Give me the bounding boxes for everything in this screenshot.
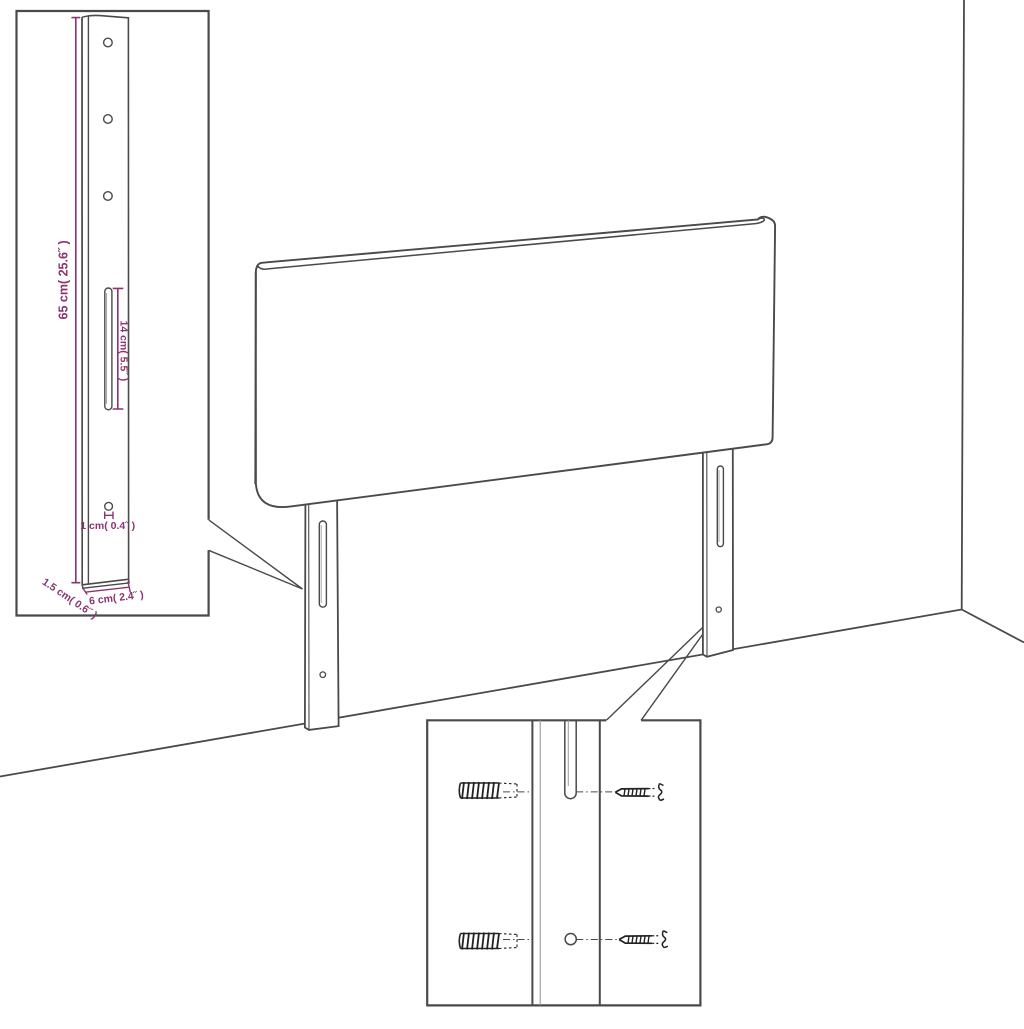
svg-text:65 cm( 25.6˝ ): 65 cm( 25.6˝ )	[57, 240, 71, 319]
svg-text:1 cm( 0.4˝ ): 1 cm( 0.4˝ )	[80, 520, 135, 532]
svg-text:14 cm( 5.5˝ ): 14 cm( 5.5˝ )	[118, 321, 130, 382]
